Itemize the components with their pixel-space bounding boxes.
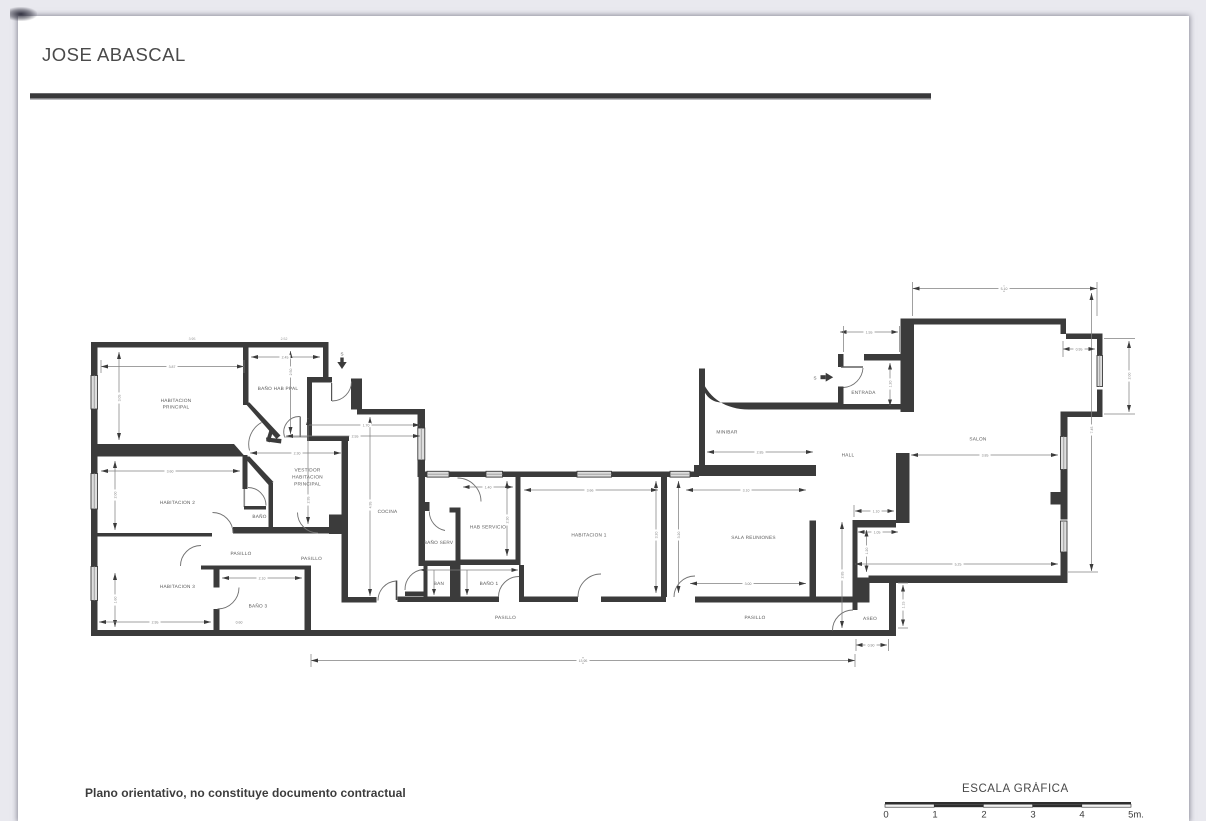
svg-text:0: 0 (883, 810, 888, 821)
svg-text:3.85: 3.85 (982, 453, 989, 457)
svg-text:2.85: 2.85 (757, 450, 764, 454)
svg-text:2.50: 2.50 (289, 369, 293, 376)
svg-text:3.00: 3.00 (745, 582, 752, 586)
svg-text:5.10: 5.10 (1001, 287, 1008, 291)
svg-text:2.85: 2.85 (840, 572, 844, 579)
svg-text:1.55: 1.55 (866, 330, 873, 334)
svg-text:HAB SERVICIO: HAB SERVICIO (470, 525, 506, 530)
svg-text:1.20: 1.20 (865, 548, 869, 555)
svg-text:4: 4 (1079, 810, 1084, 821)
svg-text:HALL: HALL (842, 453, 855, 458)
svg-text:0.90: 0.90 (868, 643, 875, 647)
svg-text:PASILLO: PASILLO (495, 615, 516, 620)
svg-text:2.00: 2.00 (113, 492, 117, 499)
svg-text:PRINCIPAL: PRINCIPAL (163, 405, 190, 410)
svg-text:1.60: 1.60 (113, 597, 117, 604)
svg-text:S: S (813, 376, 816, 381)
svg-text:2: 2 (981, 810, 986, 821)
svg-text:PASILLO: PASILLO (745, 615, 766, 620)
svg-text:2.00: 2.00 (1127, 373, 1131, 380)
svg-text:SALON: SALON (969, 437, 986, 442)
svg-text:3.20: 3.20 (654, 532, 658, 539)
svg-text:2.55: 2.55 (352, 434, 359, 438)
svg-text:HABITACION 2: HABITACION 2 (160, 500, 195, 505)
svg-text:1.15: 1.15 (901, 602, 905, 609)
svg-text:MINIBAR: MINIBAR (716, 430, 738, 435)
svg-text:PASILLO: PASILLO (231, 551, 252, 556)
svg-text:2.10: 2.10 (259, 576, 266, 580)
svg-text:S: S (340, 352, 343, 357)
svg-text:13.95: 13.95 (579, 659, 588, 663)
svg-text:2.95: 2.95 (152, 620, 159, 624)
svg-text:0.95: 0.95 (1076, 347, 1083, 351)
svg-text:HABITACION: HABITACION (292, 475, 323, 480)
svg-text:1.40: 1.40 (485, 485, 492, 489)
svg-text:SALA REUNIONES: SALA REUNIONES (731, 535, 775, 540)
svg-text:1.10: 1.10 (873, 509, 880, 513)
svg-text:HABITACION: HABITACION (161, 398, 192, 403)
svg-text:PRINCIPAL: PRINCIPAL (294, 482, 321, 487)
svg-text:1.20: 1.20 (888, 381, 892, 388)
svg-text:HABITACION 1: HABITACION 1 (571, 533, 606, 538)
svg-text:3.05: 3.05 (117, 395, 121, 402)
svg-text:2.30: 2.30 (505, 517, 509, 524)
svg-text:BAÑO HAB PPAL: BAÑO HAB PPAL (258, 385, 299, 391)
svg-text:2.95: 2.95 (306, 497, 310, 504)
svg-text:2.30: 2.30 (294, 451, 301, 455)
svg-text:BAÑO SERV: BAÑO SERV (424, 539, 454, 545)
svg-text:5.25: 5.25 (955, 562, 962, 566)
svg-text:ENTRADA: ENTRADA (851, 390, 876, 395)
svg-text:BAÑO: BAÑO (252, 513, 266, 519)
svg-text:2.52: 2.52 (281, 337, 288, 341)
svg-text:PASILLO: PASILLO (301, 556, 322, 561)
svg-text:3.95: 3.95 (189, 337, 196, 341)
svg-text:7.45: 7.45 (1090, 427, 1094, 434)
svg-text:3.87: 3.87 (169, 365, 176, 369)
svg-text:1: 1 (932, 810, 937, 821)
svg-text:4.95: 4.95 (368, 502, 372, 509)
svg-text:1.05: 1.05 (874, 530, 881, 534)
svg-text:ASEO: ASEO (863, 616, 877, 621)
svg-text:3.66: 3.66 (587, 488, 594, 492)
svg-text:5m.: 5m. (1128, 810, 1144, 821)
svg-text:BAÑO 1: BAÑO 1 (480, 580, 499, 586)
svg-text:3: 3 (1030, 810, 1035, 821)
svg-text:0.60: 0.60 (236, 620, 243, 624)
svg-text:HABITACION 3: HABITACION 3 (160, 584, 195, 589)
svg-text:3.20: 3.20 (677, 532, 681, 539)
svg-text:1.70: 1.70 (363, 423, 370, 427)
svg-text:3.60: 3.60 (167, 469, 174, 473)
svg-text:COCINA: COCINA (378, 509, 398, 514)
svg-text:3.10: 3.10 (743, 488, 750, 492)
svg-text:BAN: BAN (434, 581, 444, 586)
svg-text:BAÑO 3: BAÑO 3 (249, 603, 268, 609)
svg-text:2.45: 2.45 (282, 355, 289, 359)
